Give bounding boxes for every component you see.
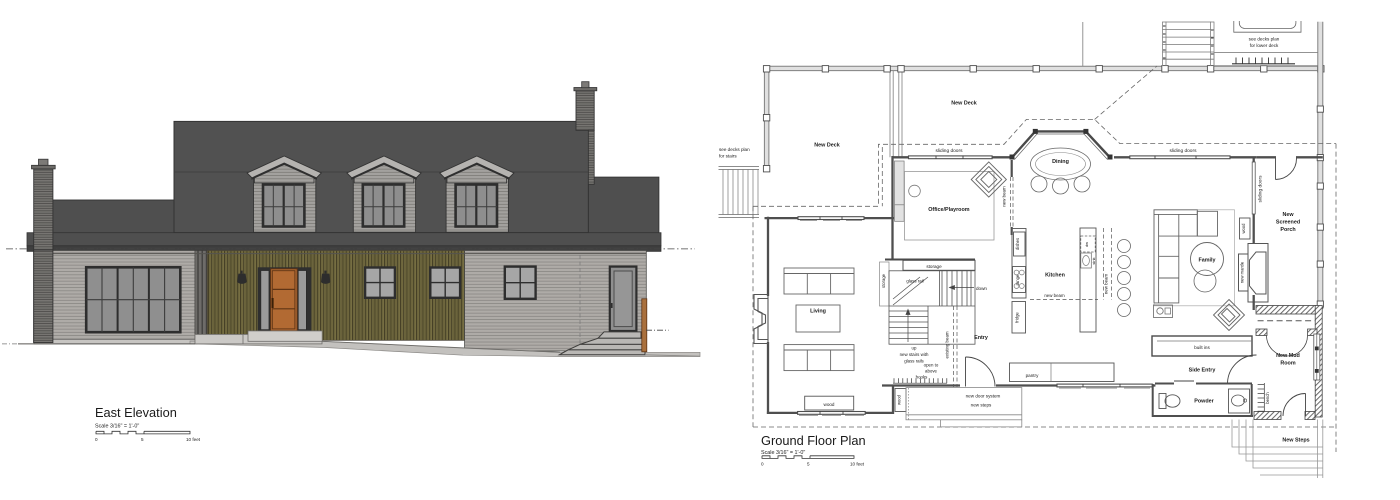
svg-text:New: New xyxy=(1282,212,1294,218)
svg-text:5: 5 xyxy=(807,462,810,467)
svg-text:see decks plan: see decks plan xyxy=(1249,37,1280,42)
svg-text:storage: storage xyxy=(881,273,886,288)
svg-text:open to: open to xyxy=(924,363,939,368)
svg-text:10 feet: 10 feet xyxy=(850,462,865,467)
svg-text:new stairs with: new stairs with xyxy=(900,352,929,357)
svg-text:built ins: built ins xyxy=(1194,345,1210,350)
svg-text:wood: wood xyxy=(824,402,835,407)
svg-text:Scale 3/16" = 1'-0": Scale 3/16" = 1'-0" xyxy=(95,424,139,430)
svg-text:glass rail: glass rail xyxy=(906,279,923,284)
svg-text:New Deck: New Deck xyxy=(814,143,839,149)
svg-text:sink: sink xyxy=(1091,257,1096,264)
svg-text:Entry: Entry xyxy=(974,335,988,341)
svg-text:Porch: Porch xyxy=(1280,227,1295,233)
svg-text:new steps: new steps xyxy=(971,403,992,408)
svg-text:5: 5 xyxy=(141,437,144,442)
svg-text:Kitchen: Kitchen xyxy=(1045,273,1065,279)
svg-text:new beam: new beam xyxy=(1044,293,1065,298)
svg-text:0: 0 xyxy=(95,437,98,442)
svg-text:0: 0 xyxy=(761,462,764,467)
svg-text:10 feet: 10 feet xyxy=(186,437,201,442)
svg-text:new door system: new door system xyxy=(966,394,1001,399)
svg-text:dw: dw xyxy=(1084,242,1089,247)
svg-text:Side Entry: Side Entry xyxy=(1189,368,1216,374)
svg-text:hooks: hooks xyxy=(916,375,929,380)
svg-text:sliding doors: sliding doors xyxy=(1258,175,1264,203)
svg-text:Ground Floor Plan: Ground Floor Plan xyxy=(761,433,866,448)
svg-text:down: down xyxy=(976,286,987,291)
svg-text:sliding doors: sliding doors xyxy=(936,148,964,154)
svg-text:wood: wood xyxy=(1241,223,1246,234)
svg-text:Room: Room xyxy=(1280,361,1295,367)
svg-text:wood: wood xyxy=(897,394,902,405)
svg-text:Scale 3/16" = 1'-0": Scale 3/16" = 1'-0" xyxy=(761,450,805,456)
svg-text:bench: bench xyxy=(1265,392,1270,404)
svg-text:East Elevation: East Elevation xyxy=(95,405,177,420)
svg-text:storage: storage xyxy=(926,264,942,269)
svg-text:pantry: pantry xyxy=(1026,373,1039,378)
svg-text:see decks plan: see decks plan xyxy=(719,147,750,152)
svg-text:new beam: new beam xyxy=(1104,274,1109,295)
svg-text:existing beam: existing beam xyxy=(945,331,950,358)
svg-text:Screened: Screened xyxy=(1276,220,1300,226)
svg-text:New Deck: New Deck xyxy=(951,101,976,107)
svg-text:new beam: new beam xyxy=(1002,186,1007,207)
svg-text:range: range xyxy=(1015,274,1020,285)
svg-text:Dining: Dining xyxy=(1052,159,1069,165)
svg-text:fridge: fridge xyxy=(1015,312,1020,323)
svg-text:dishes: dishes xyxy=(1015,238,1020,250)
svg-text:up: up xyxy=(912,346,917,351)
svg-text:for lower deck: for lower deck xyxy=(1250,43,1279,48)
svg-text:Living: Living xyxy=(810,309,826,315)
svg-text:sliding doors: sliding doors xyxy=(1170,148,1198,154)
svg-text:Office/Playroom: Office/Playroom xyxy=(928,207,970,213)
svg-text:new mantle: new mantle xyxy=(1240,261,1245,283)
svg-text:New Mud: New Mud xyxy=(1276,353,1300,359)
svg-text:for stairs: for stairs xyxy=(719,154,737,159)
svg-text:glass rails: glass rails xyxy=(904,359,924,364)
svg-text:Family: Family xyxy=(1198,258,1215,264)
svg-text:New Steps: New Steps xyxy=(1282,438,1309,444)
svg-text:above: above xyxy=(925,369,938,374)
svg-text:Powder: Powder xyxy=(1194,399,1214,405)
